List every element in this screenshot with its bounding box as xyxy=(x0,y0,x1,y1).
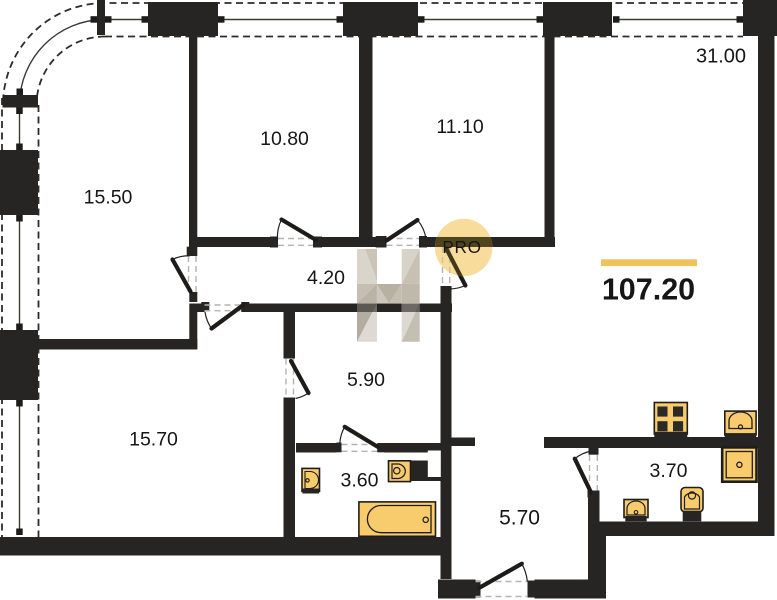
svg-text:15.50: 15.50 xyxy=(84,187,133,209)
svg-text:15.70: 15.70 xyxy=(129,429,178,451)
svg-text:5.70: 5.70 xyxy=(499,507,540,530)
svg-text:11.10: 11.10 xyxy=(436,116,484,138)
svg-text:10.80: 10.80 xyxy=(260,128,309,150)
svg-text:107.20: 107.20 xyxy=(602,273,695,307)
svg-text:PRO: PRO xyxy=(442,237,481,257)
svg-text:4.20: 4.20 xyxy=(307,267,345,289)
svg-text:31.00: 31.00 xyxy=(696,46,746,68)
svg-text:3.60: 3.60 xyxy=(341,470,379,492)
svg-text:5.90: 5.90 xyxy=(347,369,385,391)
svg-text:3.70: 3.70 xyxy=(650,460,688,482)
